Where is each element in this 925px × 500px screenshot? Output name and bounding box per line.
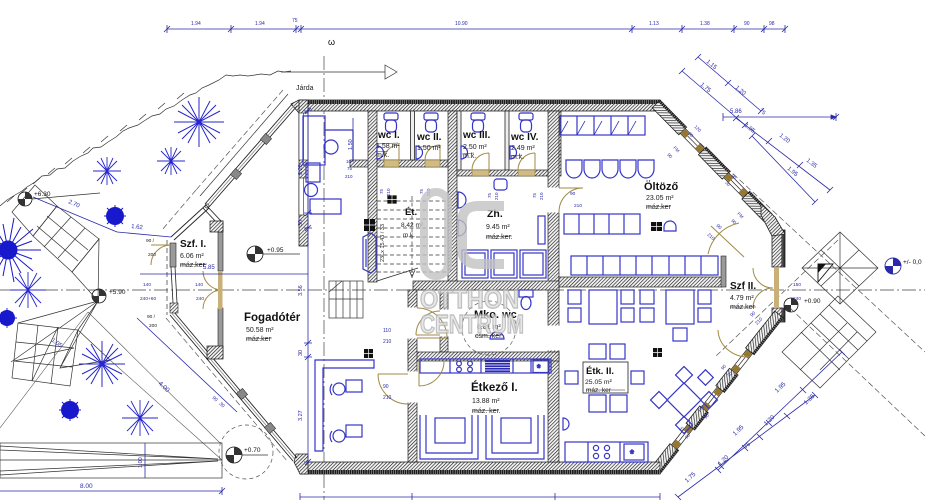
svg-text:10: 10 [346, 159, 352, 164]
svg-text:Szf. I.: Szf. I. [180, 239, 206, 250]
svg-text:+6.30: +6.30 [34, 191, 51, 198]
svg-text:wc IV.: wc IV. [510, 132, 539, 143]
svg-text:wc III.: wc III. [462, 130, 490, 141]
svg-text:1.00: 1.00 [138, 457, 144, 468]
svg-text:m.k.: m.k. [376, 152, 389, 159]
svg-text:140: 140 [143, 282, 151, 288]
svg-text:máz.ker: máz.ker [246, 336, 272, 343]
svg-text:210: 210 [383, 395, 392, 401]
svg-text:150: 150 [793, 282, 801, 288]
svg-text:6.06 m²: 6.06 m² [180, 253, 204, 260]
svg-text:2.50 m²: 2.50 m² [463, 144, 487, 151]
svg-text:13.88 m²: 13.88 m² [472, 398, 500, 405]
svg-text:m.k.: m.k. [463, 153, 476, 160]
svg-text:10.90: 10.90 [455, 21, 468, 27]
svg-text:240: 240 [196, 296, 204, 302]
svg-text:25.05 m²: 25.05 m² [585, 379, 613, 386]
svg-text:200: 200 [148, 252, 156, 258]
svg-text:+0.70: +0.70 [244, 447, 261, 454]
svg-text:1.38: 1.38 [700, 21, 710, 27]
svg-text:máz.ker.: máz.ker. [486, 234, 513, 241]
svg-text:1.94: 1.94 [255, 21, 265, 27]
svg-text:240: 240 [793, 296, 801, 302]
svg-text:máz.ker: máz.ker [730, 304, 756, 311]
svg-text:90 /: 90 / [146, 238, 155, 244]
svg-text:210: 210 [383, 339, 392, 345]
svg-text:2.49 m²: 2.49 m² [511, 145, 535, 152]
svg-text:ω: ω [328, 37, 335, 47]
svg-text:210: 210 [494, 192, 499, 200]
svg-text:3.56: 3.56 [298, 285, 304, 296]
svg-text:*: * [630, 449, 634, 460]
svg-text:30: 30 [298, 350, 304, 356]
svg-text:máz.ker: máz.ker [646, 204, 672, 211]
svg-text:23.05 m²: 23.05 m² [646, 195, 674, 202]
svg-text:90: 90 [383, 384, 389, 390]
svg-text:200: 200 [149, 323, 157, 329]
svg-text:75: 75 [379, 188, 384, 194]
svg-text:110: 110 [383, 328, 391, 334]
svg-text:Járda: Járda [296, 85, 314, 92]
svg-text:240+60: 240+60 [140, 296, 156, 302]
svg-text:wc II.: wc II. [416, 132, 442, 143]
svg-text:+0.90: +0.90 [804, 298, 821, 305]
svg-text:90: 90 [744, 21, 750, 27]
svg-text:3.28: 3.28 [298, 164, 304, 175]
svg-text:wc I.: wc I. [377, 130, 400, 141]
svg-text:*: * [537, 363, 541, 373]
svg-text:90: 90 [570, 191, 576, 197]
svg-text:75: 75 [532, 192, 537, 198]
svg-text:Étk. II.: Étk. II. [586, 366, 614, 377]
svg-text:máz. ker.: máz. ker. [472, 408, 500, 415]
svg-text:75: 75 [487, 192, 492, 198]
svg-text:75: 75 [292, 18, 298, 24]
svg-text:9.45 m²: 9.45 m² [486, 224, 510, 231]
svg-text:30: 30 [298, 220, 304, 226]
svg-text:m.k.: m.k. [511, 154, 524, 161]
svg-text:CENTRUM: CENTRUM [420, 309, 524, 339]
svg-text:210: 210 [539, 192, 544, 200]
svg-text:98: 98 [769, 21, 775, 27]
svg-text:210: 210 [574, 203, 582, 209]
svg-text:máz. ker: máz. ker [586, 387, 612, 394]
svg-text:+0.95: +0.95 [267, 247, 284, 254]
svg-text:Ét.: Ét. [405, 207, 417, 218]
svg-text:8.00: 8.00 [80, 483, 93, 490]
svg-text:90 /: 90 / [147, 314, 156, 320]
svg-text:3.27: 3.27 [298, 410, 304, 421]
svg-text:23Lx 15.43 / 33: 23Lx 15.43 / 33 [380, 224, 386, 262]
svg-text:1.13: 1.13 [649, 21, 659, 27]
svg-text:+5.90: +5.90 [109, 289, 126, 296]
svg-text:Szf II.: Szf II. [730, 281, 756, 292]
svg-text:Fogadótér: Fogadótér [244, 312, 301, 324]
svg-text:75: 75 [347, 166, 353, 171]
svg-text:m.k.: m.k. [403, 232, 415, 239]
svg-text:1.94: 1.94 [191, 21, 201, 27]
svg-text:5.86: 5.86 [730, 109, 742, 115]
svg-text:140: 140 [195, 282, 203, 288]
svg-text:50.58 m²: 50.58 m² [246, 327, 274, 334]
svg-text:Öltöző: Öltöző [644, 180, 678, 193]
svg-text:1.50: 1.50 [348, 139, 354, 150]
svg-text:+/- 0,0: +/- 0,0 [903, 259, 922, 266]
svg-text:Étkező I.: Étkező I. [471, 381, 518, 394]
svg-text:210: 210 [386, 188, 391, 196]
svg-text:75: 75 [419, 188, 424, 194]
svg-text:1.62: 1.62 [131, 224, 144, 231]
svg-text:máz.ker: máz.ker [180, 262, 206, 269]
svg-text:4.79 m²: 4.79 m² [730, 295, 754, 302]
svg-text:210: 210 [345, 174, 353, 179]
